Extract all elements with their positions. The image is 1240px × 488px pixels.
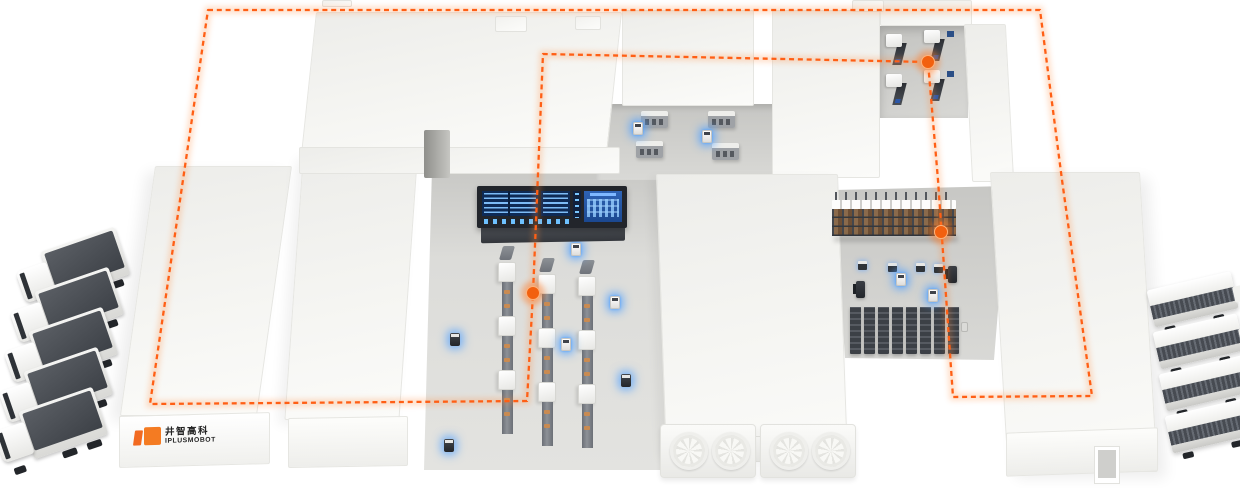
agv-robot-dark <box>621 374 631 387</box>
forklift-robot <box>856 281 865 298</box>
dashboard-data-table-mid <box>541 191 570 216</box>
roof-unit <box>495 16 527 32</box>
agv-robot <box>928 289 938 302</box>
roof-tab <box>852 0 884 12</box>
right-warehouse-roof <box>990 172 1158 472</box>
conveyor-head <box>499 246 515 260</box>
storage-cabinet <box>641 111 668 128</box>
conveyor-machine <box>498 262 516 282</box>
agv-robot <box>633 122 643 135</box>
storage-cabinet <box>708 111 735 128</box>
logo-text-en: IPLUSMOBOT <box>165 436 216 444</box>
left-warehouse-roof <box>120 166 292 416</box>
hvac-fan-icon <box>712 432 750 470</box>
conveyor-belt <box>502 282 513 316</box>
rack-column <box>934 306 945 354</box>
storage-cabinet <box>712 143 739 160</box>
truck-windshield <box>0 432 11 459</box>
roof-tab <box>322 0 352 7</box>
agv-robot-dark <box>444 439 454 452</box>
trailer-wheel <box>1231 440 1240 448</box>
rack-column <box>878 306 889 354</box>
conveyor-belt <box>542 402 553 446</box>
dashboard-data-table-left <box>482 191 538 216</box>
top-center-roof <box>301 12 622 150</box>
top-center-wall <box>299 147 620 174</box>
mid-left-roof <box>284 154 418 420</box>
conveyor-machine <box>538 382 556 402</box>
rack-shuttle-bot <box>888 263 897 272</box>
conveyor-machine <box>578 330 596 350</box>
machine-room-right-wall <box>964 24 1014 182</box>
conveyor-line <box>578 260 596 448</box>
center-bottom-roof <box>656 174 848 456</box>
dashboard-screen <box>477 186 627 228</box>
logo-mark-icon <box>134 427 161 447</box>
machine-head <box>886 34 902 47</box>
agv-robot <box>702 130 712 143</box>
storage-cabinet <box>636 141 663 158</box>
machine-control-box <box>947 31 954 37</box>
agv-robot <box>561 338 571 351</box>
rack-column <box>920 306 931 354</box>
agv-robot <box>610 296 620 309</box>
hvac-fan-icon <box>670 432 708 470</box>
dashboard-schematic-panel <box>584 191 622 222</box>
conveyor-belt <box>582 404 593 448</box>
conveyor-machine <box>498 316 516 336</box>
rack-column <box>864 306 875 354</box>
machining-center <box>922 30 956 62</box>
forklift-robot <box>948 266 957 283</box>
machine-head <box>924 70 940 83</box>
conveyor-line <box>498 246 516 434</box>
machine-room-top-wall <box>880 0 972 26</box>
right-warehouse-wall <box>1006 427 1158 476</box>
conveyor-machine <box>538 274 556 294</box>
conveyor-belt <box>582 350 593 384</box>
cabinet-room-floor <box>596 104 786 180</box>
rack-stored-boxes <box>832 209 956 236</box>
top-right-roof <box>772 10 880 178</box>
machine-control-box <box>947 71 954 77</box>
rack-column <box>850 306 861 354</box>
left-warehouse-wall: 井智高科 IPLUSMOBOT <box>119 412 270 468</box>
rack-column <box>948 306 959 354</box>
conveyor-belt <box>542 294 553 328</box>
roof-doorway-notch <box>424 130 450 178</box>
control-dashboard <box>477 186 629 244</box>
machining-center <box>884 74 918 106</box>
hvac-fan-icon <box>770 432 808 470</box>
machine-head <box>886 74 902 87</box>
trailer-wheel <box>1182 451 1194 459</box>
top-mid-roof <box>622 10 754 106</box>
company-logo: 井智高科 IPLUSMOBOT <box>134 425 216 446</box>
dashboard-status-indicators <box>573 191 581 218</box>
rack-shuttle-bot <box>934 264 943 273</box>
truck-wheel <box>13 465 27 476</box>
mini-robot <box>961 322 968 332</box>
conveyor-head <box>579 260 595 274</box>
machining-center <box>884 34 918 66</box>
pallet-rack <box>832 192 958 244</box>
dashboard-button-row <box>484 219 570 224</box>
conveyor-belt <box>542 348 553 382</box>
hvac-fan-icon <box>812 432 850 470</box>
conveyor-belt <box>502 390 513 434</box>
machining-center <box>922 70 956 102</box>
conveyor-line <box>538 258 556 446</box>
conveyor-belt <box>502 336 513 370</box>
logo-text: 井智高科 IPLUSMOBOT <box>165 426 216 444</box>
hvac-unit <box>660 424 756 478</box>
conveyor-head <box>539 258 555 272</box>
rack-column <box>906 306 917 354</box>
right-dock-notch <box>1094 446 1120 484</box>
agv-robot <box>571 243 581 256</box>
agv-robot <box>896 273 906 286</box>
rack-shuttle-bot <box>916 263 925 272</box>
conveyor-machine <box>578 276 596 296</box>
conveyor-machine <box>578 384 596 404</box>
rack-shadow <box>834 236 958 242</box>
rack-shuttle-bot <box>858 261 867 270</box>
hvac-unit <box>760 424 856 478</box>
machine-head <box>924 30 940 43</box>
rack-top-beam <box>832 200 956 209</box>
roof-unit <box>575 16 601 30</box>
conveyor-machine <box>538 328 556 348</box>
conveyor-belt <box>582 296 593 330</box>
factory-scene: 井智高科 IPLUSMOBOT <box>0 0 1240 488</box>
mid-left-wall <box>288 416 408 468</box>
rack-column <box>892 306 903 354</box>
conveyor-machine <box>498 370 516 390</box>
agv-robot-dark <box>450 333 460 346</box>
